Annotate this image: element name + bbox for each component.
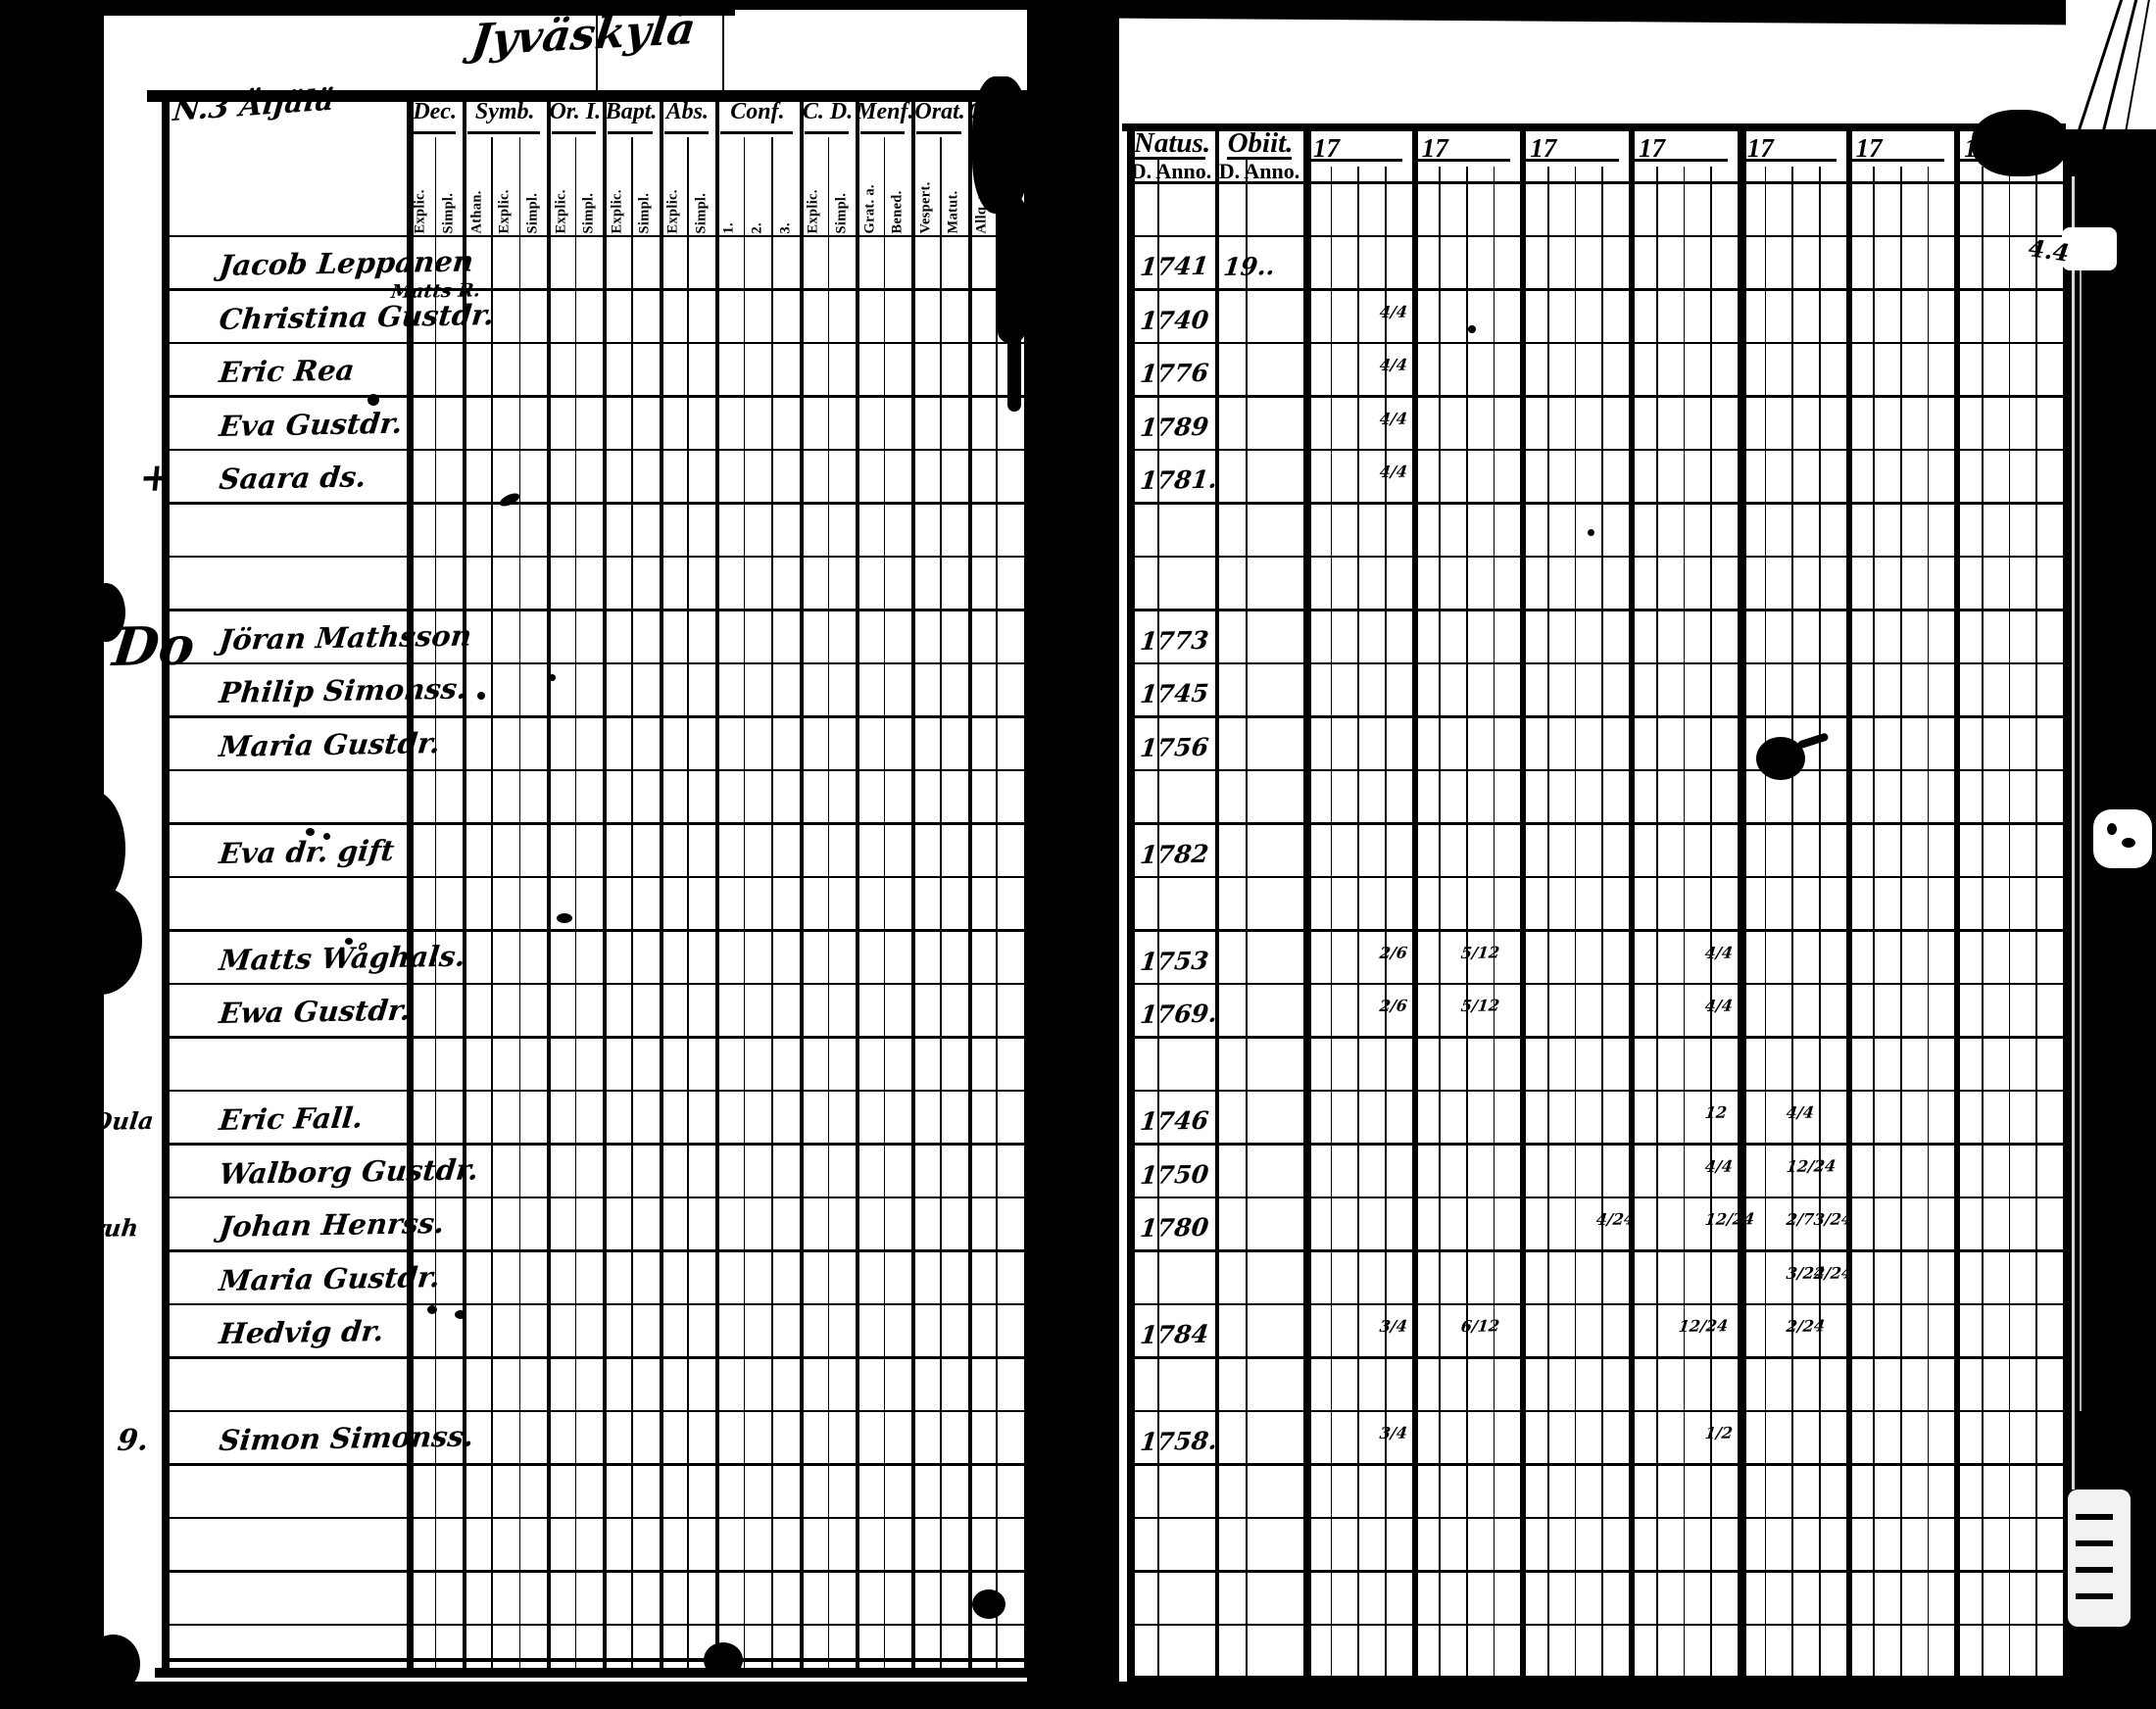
ink-speck bbox=[1468, 325, 1476, 333]
attendance-mark-handwritten: 4/4 bbox=[1379, 464, 1416, 479]
year-column-underline bbox=[1743, 159, 1837, 162]
attendance-mark-handwritten: 3/4 bbox=[1379, 1318, 1416, 1334]
ink-blot bbox=[1972, 110, 2068, 176]
ink-speck bbox=[455, 1310, 466, 1319]
ink-blot bbox=[86, 583, 125, 642]
row-line bbox=[162, 769, 1024, 772]
resident-name-handwritten: Jöran Mathsson bbox=[218, 618, 473, 656]
column-group-border bbox=[911, 102, 915, 1678]
column-group-border bbox=[968, 102, 972, 1678]
ink-speck bbox=[477, 692, 485, 700]
row-line bbox=[162, 1249, 1024, 1252]
resident-name-handwritten: Eva dr. gift bbox=[218, 833, 396, 869]
row-line bbox=[1127, 1196, 2063, 1199]
year-column-border bbox=[1954, 123, 1960, 1676]
row-line bbox=[162, 929, 1024, 932]
ink-dash bbox=[2076, 1514, 2113, 1520]
column-group-label: Symb. bbox=[463, 99, 547, 125]
year-subcolumn-line bbox=[1547, 167, 1549, 1676]
column-sub-label: Bened. bbox=[889, 142, 907, 234]
ink-speck bbox=[427, 1305, 437, 1314]
attendance-mark-handwritten: 2/6 bbox=[1379, 945, 1416, 960]
column-sub-label: Grat. a. bbox=[860, 142, 879, 234]
obiit-underline bbox=[1227, 157, 1292, 160]
bottom-edge-strip bbox=[0, 1682, 2156, 1709]
subcolumn-line bbox=[884, 137, 886, 1678]
margin-mark-handwritten: 9. bbox=[116, 1423, 150, 1458]
attendance-mark-handwritten: 4/4 bbox=[1379, 304, 1416, 319]
column-group-underline bbox=[467, 131, 540, 134]
corner-highlight bbox=[2066, 0, 2156, 129]
column-group-label: C. D. bbox=[800, 99, 856, 125]
row-line bbox=[1127, 342, 2063, 345]
resident-name-handwritten: Philip Simonss. bbox=[218, 672, 468, 709]
year-column-underline bbox=[1309, 159, 1402, 162]
year-subcolumn-line bbox=[1873, 167, 1875, 1676]
column-group-border bbox=[856, 102, 859, 1678]
attendance-mark-handwritten: 3/24 bbox=[1813, 1211, 1850, 1227]
natus-year-handwritten: 1781. bbox=[1139, 465, 1219, 495]
year-subcolumn-line bbox=[2009, 167, 2011, 1676]
column-group-label: Dec. bbox=[407, 99, 463, 125]
year-column-underline bbox=[1635, 159, 1728, 162]
column-group-border bbox=[660, 102, 663, 1678]
year-subcolumn-line bbox=[1928, 167, 1930, 1676]
natus-year-handwritten: 1741 bbox=[1139, 252, 1210, 281]
ink-blot bbox=[704, 1642, 743, 1678]
ink-speck bbox=[367, 394, 379, 406]
column-group-underline bbox=[860, 131, 905, 134]
year-column-border bbox=[1520, 123, 1526, 1676]
row-line bbox=[1127, 662, 2063, 665]
right-table-left-border bbox=[1127, 123, 1135, 1676]
row-line bbox=[1127, 1624, 2063, 1627]
year-subcolumn-line bbox=[1466, 167, 1468, 1676]
year-column-underline bbox=[1852, 159, 1945, 162]
row-line bbox=[162, 1570, 1024, 1573]
column-sub-label: 1. bbox=[720, 142, 739, 234]
row-line bbox=[1127, 181, 2063, 184]
natus-year-handwritten: 1745 bbox=[1139, 679, 1210, 708]
natus-year-handwritten: 1746 bbox=[1139, 1106, 1210, 1136]
page-gutter bbox=[1027, 0, 1119, 1709]
year-subcolumn-line bbox=[1385, 167, 1387, 1676]
natus-year-handwritten: 1740 bbox=[1139, 305, 1210, 334]
column-sub-label: 3. bbox=[776, 142, 795, 234]
column-sub-label: Simpl. bbox=[439, 142, 458, 234]
ink-dash bbox=[2076, 1540, 2113, 1546]
year-subcolumn-line bbox=[1601, 167, 1603, 1676]
ink-speck bbox=[1588, 529, 1594, 536]
row-line bbox=[1127, 1090, 2063, 1093]
natus-year-handwritten: 1789 bbox=[1139, 412, 1210, 441]
row-line bbox=[1127, 715, 2063, 718]
row-line bbox=[162, 715, 1024, 718]
column-group-border bbox=[603, 102, 607, 1678]
column-group-border bbox=[800, 102, 804, 1678]
subcolumn-line bbox=[631, 137, 633, 1678]
year-column-border bbox=[1846, 123, 1852, 1676]
column-group-label: Orat. bbox=[911, 99, 967, 125]
resident-name-handwritten: Eric Rea bbox=[218, 354, 356, 389]
year-subcolumn-line bbox=[1357, 167, 1359, 1676]
row-line bbox=[162, 342, 1024, 345]
row-line bbox=[1127, 502, 2063, 505]
natus-year-handwritten: 1784 bbox=[1139, 1320, 1210, 1349]
row-line bbox=[162, 983, 1024, 986]
obiit-years-border bbox=[1303, 123, 1311, 1676]
year-subcolumn-line bbox=[1900, 167, 1902, 1676]
resident-name-handwritten: Matts Wåghals. bbox=[218, 939, 467, 976]
natus-year-handwritten: 1753 bbox=[1139, 946, 1210, 975]
row-line bbox=[162, 1517, 1024, 1520]
natus-year-handwritten: 1756 bbox=[1139, 732, 1210, 761]
row-line bbox=[162, 1303, 1024, 1306]
year-subcolumn-line bbox=[1494, 167, 1495, 1676]
row-line bbox=[1127, 609, 2063, 611]
subcolumn-line bbox=[744, 137, 746, 1678]
attendance-mark-handwritten: 12 bbox=[1704, 1104, 1741, 1120]
resident-name-handwritten: Hedvig dr. bbox=[218, 1314, 385, 1350]
row-line bbox=[162, 449, 1024, 452]
obiit-year-handwritten: 19.. bbox=[1222, 252, 1276, 281]
attendance-mark-handwritten: 12/24 bbox=[1704, 1211, 1741, 1227]
attendance-mark-handwritten: 4/4 bbox=[1704, 1158, 1741, 1174]
resident-name-handwritten: Jacob Leppanen bbox=[218, 244, 475, 282]
row-line bbox=[1127, 1410, 2063, 1413]
ink-dash bbox=[2076, 1567, 2113, 1573]
column-group-underline bbox=[412, 131, 456, 134]
column-sub-label: Vespert. bbox=[916, 142, 935, 234]
column-sub-label: Explic. bbox=[412, 142, 430, 234]
subcolumn-line bbox=[491, 137, 493, 1678]
resident-name-handwritten: Ewa Gustdr. bbox=[218, 994, 412, 1030]
row-line bbox=[162, 1463, 1024, 1466]
resident-name-handwritten: Simon Simonss. bbox=[218, 1419, 475, 1457]
scanned-book-spread: Jyväskylä N.3 Äijälä Natus. Obiit. D. An… bbox=[0, 0, 2156, 1709]
year-column-underline bbox=[1418, 159, 1511, 162]
left-table-left-border bbox=[162, 90, 170, 1678]
row-line bbox=[162, 609, 1024, 611]
ink-speck bbox=[306, 828, 315, 836]
row-line bbox=[162, 1196, 1024, 1199]
column-sub-label: Simpl. bbox=[692, 142, 710, 234]
resident-name-handwritten: Maria Gustdr. bbox=[218, 726, 442, 763]
ink-speck bbox=[345, 938, 353, 945]
year-column-underline bbox=[1526, 159, 1619, 162]
row-line bbox=[1127, 395, 2063, 398]
column-group-border bbox=[547, 102, 551, 1678]
ink-dash bbox=[2076, 1593, 2113, 1599]
row-line bbox=[1127, 769, 2063, 772]
row-line bbox=[162, 662, 1024, 665]
natus-year-handwritten: 1773 bbox=[1139, 625, 1210, 655]
row-line bbox=[162, 876, 1024, 879]
row-line bbox=[1127, 1303, 2063, 1306]
natus-year-handwritten: 1780 bbox=[1139, 1213, 1210, 1243]
row-line bbox=[1127, 1356, 2063, 1359]
ink-blot bbox=[1007, 333, 1021, 412]
row-line bbox=[162, 235, 1024, 238]
natus-underline bbox=[1135, 157, 1205, 160]
column-sub-label: 2. bbox=[748, 142, 766, 234]
d-anno-divider bbox=[1246, 159, 1248, 1676]
row-line bbox=[1127, 929, 2063, 932]
scan-streak bbox=[2072, 176, 2075, 1489]
row-line bbox=[1127, 822, 2063, 825]
column-sub-label: Simpl. bbox=[832, 142, 851, 234]
column-sub-label: Explic. bbox=[496, 142, 514, 234]
attendance-mark-handwritten: 4/4 bbox=[1379, 411, 1416, 426]
ink-speck bbox=[557, 913, 572, 923]
column-sub-label: Simpl. bbox=[523, 142, 542, 234]
row-line bbox=[162, 1624, 1024, 1627]
attendance-mark-handwritten: 4/4 bbox=[1704, 998, 1741, 1013]
attendance-mark-handwritten: 1/2 bbox=[1704, 1425, 1741, 1440]
year-subcolumn-line bbox=[1982, 167, 1984, 1676]
row-line bbox=[1127, 556, 2063, 559]
attendance-mark-handwritten: 3/4 bbox=[1379, 1425, 1416, 1440]
attendance-mark-handwritten: 12/24 bbox=[1786, 1158, 1823, 1174]
year-subcolumn-line bbox=[1765, 167, 1767, 1676]
subcolumn-line bbox=[575, 137, 577, 1678]
row-line bbox=[162, 1090, 1024, 1093]
row-line bbox=[1127, 876, 2063, 879]
column-group-label: Abs. bbox=[660, 99, 715, 125]
row-line bbox=[162, 288, 1024, 291]
column-sub-label: Explic. bbox=[608, 142, 626, 234]
right-table-top-border bbox=[1122, 123, 2071, 131]
column-group-label: Bapt. bbox=[603, 99, 659, 125]
column-group-underline bbox=[552, 131, 596, 134]
resident-name-handwritten: Maria Gustdr. bbox=[218, 1260, 442, 1297]
attendance-mark-handwritten: 5/12 bbox=[1460, 945, 1497, 960]
row-line bbox=[1127, 288, 2063, 291]
resident-name-handwritten: Saara ds. bbox=[218, 460, 367, 496]
ink-blot bbox=[998, 196, 1025, 343]
attendance-mark-handwritten: 2/24 bbox=[1813, 1265, 1850, 1281]
attendance-mark-handwritten: 12/24 bbox=[1678, 1318, 1715, 1334]
column-group-label: Or. I. bbox=[547, 99, 603, 125]
year-subcolumn-line bbox=[1710, 167, 1712, 1676]
column-group-underline bbox=[608, 131, 652, 134]
scan-patch bbox=[2068, 1489, 2131, 1627]
year-subcolumn-line bbox=[1575, 167, 1577, 1676]
fold-line bbox=[722, 0, 724, 98]
row-line bbox=[162, 1410, 1024, 1413]
attendance-mark-handwritten: 4/4 bbox=[1786, 1104, 1823, 1120]
year-subcolumn-line bbox=[1791, 167, 1793, 1676]
resident-name-note-handwritten: Matts R. bbox=[390, 279, 481, 303]
year-subcolumn-line bbox=[2035, 167, 2037, 1676]
resident-name-handwritten: Walborg Gustdr. bbox=[218, 1152, 480, 1191]
attendance-mark-handwritten: 6/12 bbox=[1460, 1318, 1497, 1334]
ink-blot bbox=[59, 887, 142, 995]
row-line bbox=[1127, 1570, 2063, 1573]
column-sub-label: Matut. bbox=[945, 142, 963, 234]
natus-year-handwritten: 1776 bbox=[1139, 359, 1210, 388]
ink-speck bbox=[323, 833, 330, 840]
row-line bbox=[162, 395, 1024, 398]
year-subcolumn-line bbox=[1331, 167, 1333, 1676]
row-line bbox=[162, 502, 1024, 505]
resident-name-handwritten: Johan Henrss. bbox=[218, 1206, 446, 1244]
subcolumn-line bbox=[940, 137, 942, 1678]
row-line bbox=[1127, 1036, 2063, 1039]
scan-patch bbox=[2062, 227, 2117, 270]
attendance-mark-handwritten: 4/4 bbox=[1704, 945, 1741, 960]
subcolumn-line bbox=[828, 137, 830, 1678]
column-sub-label: Explic. bbox=[805, 142, 823, 234]
column-group-underline bbox=[916, 131, 960, 134]
year-subcolumn-line bbox=[1819, 167, 1821, 1676]
attendance-mark-handwritten: 5/12 bbox=[1460, 998, 1497, 1013]
resident-name-handwritten: Christina Gustdr. bbox=[218, 298, 496, 336]
column-sub-label: Athan. bbox=[467, 142, 486, 234]
subcolumn-line bbox=[771, 137, 773, 1678]
year-column-border bbox=[1738, 123, 1746, 1676]
resident-name-handwritten: Eva Gustdr. bbox=[218, 406, 404, 442]
row-line bbox=[1127, 1463, 2063, 1466]
ink-speck bbox=[2107, 823, 2117, 835]
ink-blot bbox=[972, 1589, 1005, 1619]
column-sub-label: Simpl. bbox=[636, 142, 655, 234]
row-line bbox=[162, 822, 1024, 825]
ink-speck bbox=[2122, 838, 2135, 848]
attendance-mark-handwritten: 2/6 bbox=[1379, 998, 1416, 1013]
year-column-border bbox=[1629, 123, 1635, 1676]
row-line bbox=[1127, 235, 2063, 238]
year-subcolumn-line bbox=[1439, 167, 1441, 1676]
natus-year-handwritten: 1782 bbox=[1139, 839, 1210, 868]
column-sub-label: Explic. bbox=[552, 142, 570, 234]
column-sub-label: Simpl. bbox=[580, 142, 599, 234]
top-edge-strip bbox=[730, 0, 1029, 10]
row-line bbox=[1127, 1517, 2063, 1520]
column-group-underline bbox=[720, 131, 793, 134]
ink-blot bbox=[972, 76, 1029, 214]
top-edge-strip bbox=[98, 0, 735, 16]
natus-year-handwritten: 1750 bbox=[1139, 1159, 1210, 1189]
year-subcolumn-line bbox=[1656, 167, 1658, 1676]
row-line bbox=[1127, 983, 2063, 986]
row-line bbox=[162, 1143, 1024, 1146]
row-line bbox=[1127, 1249, 2063, 1252]
column-sub-label: Explic. bbox=[664, 142, 683, 234]
margin-mark-handwritten: + bbox=[137, 454, 175, 501]
resident-name-handwritten: Eric Fall. bbox=[218, 1100, 365, 1137]
natus-year-handwritten: 1769. bbox=[1139, 1000, 1219, 1029]
column-group-underline bbox=[664, 131, 709, 134]
row-line bbox=[162, 1356, 1024, 1359]
row-line bbox=[1127, 449, 2063, 452]
fold-line bbox=[596, 0, 598, 98]
column-group-label: Menf. bbox=[856, 99, 911, 125]
column-group-border bbox=[715, 102, 719, 1678]
scan-streak bbox=[2080, 255, 2082, 1411]
attendance-mark-handwritten: 2/24 bbox=[1786, 1318, 1823, 1334]
subcolumn-line bbox=[687, 137, 689, 1678]
attendance-mark-handwritten: 4/4 bbox=[1379, 357, 1416, 372]
subcolumn-line bbox=[996, 137, 998, 1678]
column-group-label: Conf. bbox=[715, 99, 800, 125]
subcolumn-line bbox=[519, 137, 521, 1678]
column-group-underline bbox=[805, 131, 849, 134]
natus-year-handwritten: 1758. bbox=[1139, 1427, 1219, 1456]
row-line bbox=[162, 556, 1024, 559]
edge-note-handwritten: 4.4 bbox=[2027, 233, 2071, 268]
year-subcolumn-line bbox=[1684, 167, 1686, 1676]
row-line bbox=[1127, 1143, 2063, 1146]
attendance-mark-handwritten: 4/24 bbox=[1595, 1211, 1633, 1227]
ink-speck bbox=[549, 674, 556, 681]
left-table-bottom-border bbox=[155, 1668, 1028, 1678]
left-table-bottom-border bbox=[162, 1658, 1024, 1662]
row-line bbox=[162, 1036, 1024, 1039]
ink-blot bbox=[86, 1635, 140, 1693]
